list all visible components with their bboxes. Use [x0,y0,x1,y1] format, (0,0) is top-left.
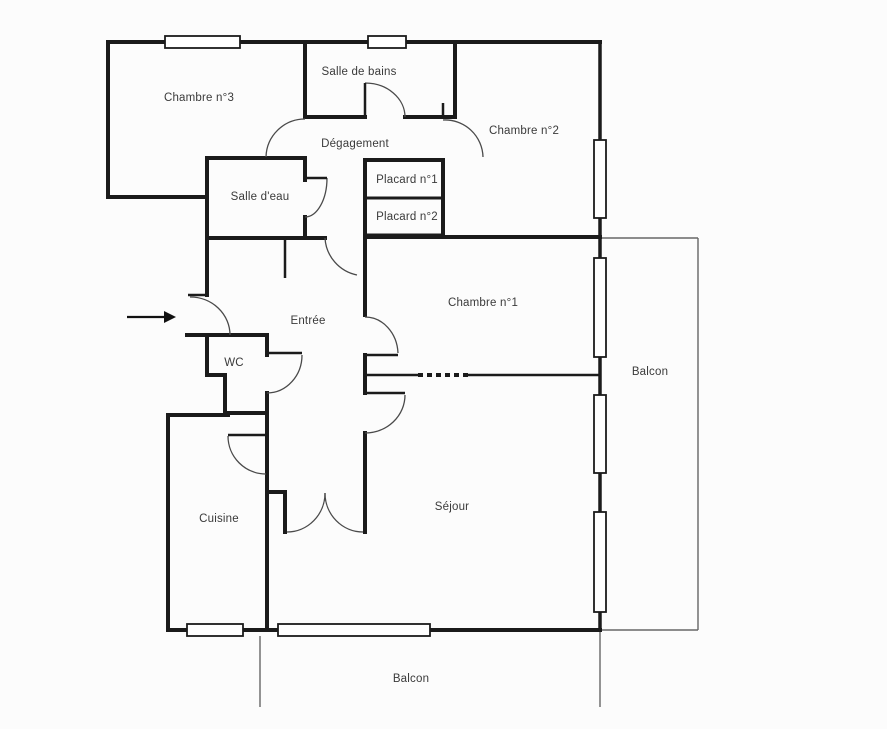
window-symbol [594,140,606,218]
room-label-placard-1: Placard n°1 [376,174,438,186]
door-swing-arc [443,120,483,157]
window-symbol [368,36,406,48]
room-label-chambre-2: Chambre n°2 [489,125,559,137]
entry-arrow [127,311,176,323]
room-label-placard-2: Placard n°2 [376,211,438,223]
door-swing-arc [325,493,363,532]
room-label-entree: Entrée [290,315,325,327]
door-swing-layer [190,83,483,532]
room-label-wc: WC [224,357,244,369]
room-label-degagement: Dégagement [321,138,389,150]
window-symbol [594,395,606,473]
door-swing-arc [365,83,405,117]
room-label-cuisine: Cuisine [199,513,239,525]
door-swing-arc [325,238,357,275]
window-symbol [594,258,606,357]
door-swing-arc [266,119,305,157]
room-label-balcon-bas: Balcon [393,673,429,685]
door-swing-arc [305,178,327,217]
entry-arrow-head [164,311,176,323]
window-symbol [187,624,243,636]
door-swing-arc [365,317,398,353]
window-symbol [165,36,240,48]
door-swing-arc [190,297,230,335]
door-swing-arc [287,493,325,532]
room-label-chambre-3: Chambre n°3 [164,92,234,104]
window-symbol [278,624,430,636]
door-swing-arc [365,395,405,433]
window-symbol [594,512,606,612]
room-label-balcon-droit: Balcon [632,366,668,378]
room-label-chambre-1: Chambre n°1 [448,297,518,309]
room-label-salle-d-eau: Salle d'eau [231,191,290,203]
floorplan-drawing [0,0,887,729]
door-swing-arc [228,436,266,474]
floorplan-canvas: Chambre n°3Salle de bainsChambre n°2Déga… [0,0,887,729]
room-label-salle-de-bains: Salle de bains [321,66,396,78]
room-label-sejour: Séjour [435,501,469,513]
door-swing-arc [267,355,302,393]
